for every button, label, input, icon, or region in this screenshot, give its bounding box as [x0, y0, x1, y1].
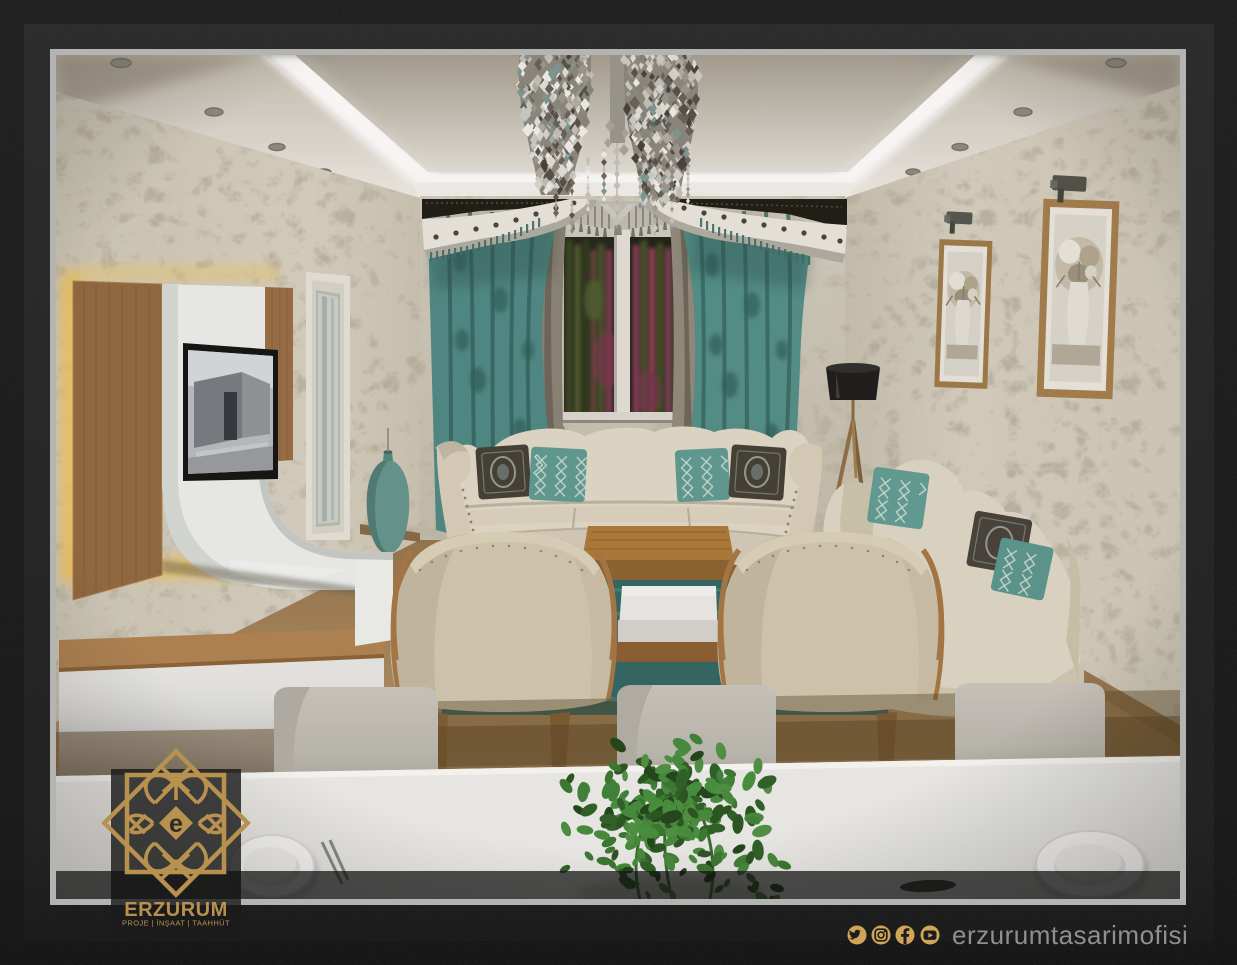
svg-text:erzurumtasarimofisi: erzurumtasarimofisi: [952, 920, 1188, 950]
svg-text:PROJE | İNŞAAT | TAAHHÜT: PROJE | İNŞAAT | TAAHHÜT: [122, 919, 230, 928]
svg-text:e: e: [169, 810, 183, 838]
